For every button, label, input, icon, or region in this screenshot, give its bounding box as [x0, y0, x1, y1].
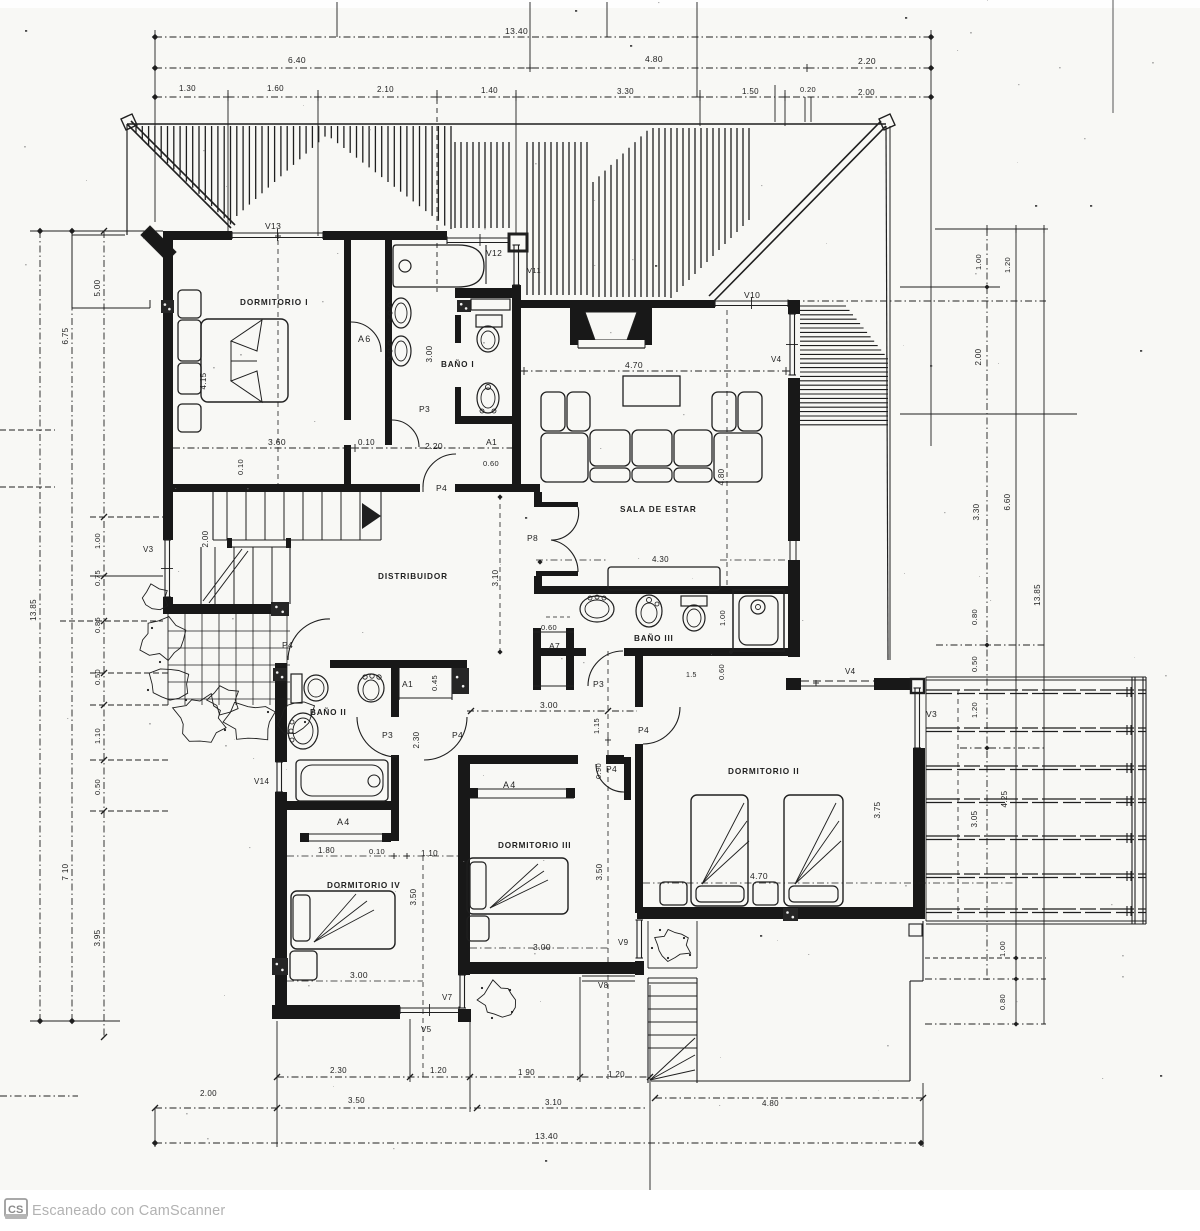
svg-text:3.50: 3.50: [595, 863, 604, 880]
svg-text:13.40: 13.40: [535, 1131, 558, 1141]
svg-text:P4: P4: [606, 764, 617, 774]
svg-text:V10: V10: [744, 290, 760, 300]
svg-text:0.45: 0.45: [430, 675, 439, 691]
svg-text:V14: V14: [254, 777, 269, 786]
svg-text:DORMITORIO III: DORMITORIO III: [498, 841, 571, 850]
svg-text:V12: V12: [486, 248, 502, 258]
svg-text:6.75: 6.75: [61, 327, 70, 344]
svg-text:3.50: 3.50: [409, 888, 418, 905]
svg-text:A4: A4: [503, 780, 516, 790]
svg-text:V7: V7: [442, 993, 453, 1002]
svg-text:2.20: 2.20: [425, 441, 443, 451]
svg-text:V4: V4: [845, 667, 856, 676]
svg-text:2.20: 2.20: [858, 56, 876, 66]
svg-text:3.10: 3.10: [491, 569, 500, 586]
svg-text:3.60: 3.60: [268, 437, 286, 447]
svg-text:P4: P4: [436, 483, 447, 493]
svg-text:2.30: 2.30: [412, 731, 421, 748]
svg-text:3.05: 3.05: [970, 810, 979, 827]
svg-text:P4: P4: [452, 730, 463, 740]
svg-text:1 90: 1 90: [518, 1068, 535, 1077]
svg-text:Escaneado con CamScanner: Escaneado con CamScanner: [32, 1203, 225, 1219]
svg-text:3.00: 3.00: [350, 970, 368, 980]
svg-text:13.40: 13.40: [505, 26, 528, 36]
svg-text:V8: V8: [598, 981, 609, 990]
svg-text:V4: V4: [771, 355, 782, 364]
svg-text:DORMITORIO II: DORMITORIO II: [728, 767, 800, 776]
svg-text:2.00: 2.00: [974, 348, 983, 365]
svg-text:P4: P4: [282, 640, 293, 650]
svg-text:1.15: 1.15: [592, 718, 601, 734]
svg-text:0.60: 0.60: [717, 664, 726, 680]
svg-text:0.75: 0.75: [93, 570, 102, 586]
svg-text:1.30: 1.30: [179, 84, 196, 93]
svg-text:3.95: 3.95: [93, 929, 102, 946]
svg-text:A6: A6: [358, 334, 371, 344]
svg-text:A7: A7: [549, 641, 560, 651]
svg-text:1.10: 1.10: [421, 849, 438, 858]
svg-text:4.80: 4.80: [762, 1099, 779, 1108]
svg-text:3.00: 3.00: [425, 345, 434, 362]
svg-text:2.00: 2.00: [200, 1089, 217, 1098]
svg-text:A4: A4: [337, 817, 350, 827]
svg-text:4.70: 4.70: [625, 360, 643, 370]
svg-text:A1: A1: [402, 679, 413, 689]
svg-text:V11: V11: [527, 266, 541, 275]
svg-text:0.80: 0.80: [998, 994, 1007, 1010]
svg-text:13.85: 13.85: [29, 599, 38, 621]
svg-text:0.10: 0.10: [369, 847, 385, 856]
svg-text:P3: P3: [419, 404, 430, 414]
svg-text:0.10: 0.10: [236, 459, 245, 475]
svg-text:4.15: 4.15: [199, 372, 208, 389]
svg-text:0.50: 0.50: [93, 779, 102, 795]
svg-text:0.20: 0.20: [800, 85, 816, 94]
svg-text:1 20: 1 20: [608, 1070, 625, 1079]
svg-text:1.40: 1.40: [481, 86, 498, 95]
svg-text:2.00: 2.00: [858, 88, 875, 97]
svg-text:1.00: 1.00: [718, 610, 727, 626]
svg-text:0.60: 0.60: [541, 623, 557, 632]
svg-text:3.30: 3.30: [617, 87, 634, 96]
svg-text:0.85: 0.85: [93, 617, 102, 633]
svg-text:V13: V13: [265, 221, 281, 231]
svg-text:V3: V3: [926, 709, 937, 719]
svg-text:1.60: 1.60: [267, 84, 284, 93]
svg-text:DISTRIBUIDOR: DISTRIBUIDOR: [378, 572, 448, 581]
svg-text:0.90: 0.90: [594, 763, 603, 779]
svg-text:P8: P8: [527, 533, 538, 543]
svg-text:13.85: 13.85: [1033, 584, 1042, 606]
svg-text:3.50: 3.50: [348, 1096, 365, 1105]
svg-text:V3: V3: [143, 545, 154, 554]
svg-text:P3: P3: [382, 730, 393, 740]
svg-text:0.50: 0.50: [93, 669, 102, 685]
svg-text:6.60: 6.60: [1003, 493, 1012, 510]
svg-text:4.80: 4.80: [717, 468, 726, 485]
svg-text:1.50: 1.50: [742, 87, 759, 96]
svg-text:DORMITORIO IV: DORMITORIO IV: [327, 881, 400, 890]
svg-text:4.30: 4.30: [652, 555, 669, 564]
svg-text:4.70: 4.70: [750, 871, 768, 881]
svg-text:6.40: 6.40: [288, 55, 306, 65]
svg-text:7 10: 7 10: [61, 863, 70, 880]
svg-text:1.00: 1.00: [974, 254, 983, 270]
svg-text:1.00: 1.00: [93, 533, 102, 549]
svg-text:2.00: 2.00: [201, 530, 210, 547]
svg-text:3.00: 3.00: [533, 942, 551, 952]
svg-text:4.80: 4.80: [645, 54, 663, 64]
svg-text:3.10: 3.10: [545, 1098, 562, 1107]
svg-text:1.10: 1.10: [93, 728, 102, 744]
svg-text:2.30: 2.30: [330, 1066, 347, 1075]
svg-text:V9: V9: [618, 938, 629, 947]
svg-text:0.60: 0.60: [483, 459, 499, 468]
svg-text:0.50: 0.50: [970, 656, 979, 672]
svg-text:5.00: 5.00: [93, 279, 102, 296]
svg-text:BAÑO I: BAÑO I: [441, 359, 474, 369]
svg-text:1.5: 1.5: [686, 672, 697, 679]
svg-text:1.20: 1.20: [970, 702, 979, 718]
svg-text:0.80: 0.80: [970, 609, 979, 625]
svg-text:3.30: 3.30: [972, 503, 981, 520]
svg-text:P3: P3: [593, 679, 604, 689]
svg-text:3.75: 3.75: [873, 801, 882, 818]
svg-text:V5: V5: [421, 1025, 432, 1034]
svg-text:2.10: 2.10: [377, 85, 394, 94]
svg-text:1.20: 1.20: [430, 1066, 447, 1075]
svg-text:1.20: 1.20: [1003, 257, 1012, 273]
svg-text:0.10: 0.10: [358, 438, 375, 447]
svg-text:A1: A1: [486, 437, 497, 447]
svg-text:DORMITORIO I: DORMITORIO I: [240, 298, 308, 307]
svg-text:1.80: 1.80: [318, 846, 335, 855]
svg-text:1.00: 1.00: [998, 941, 1007, 957]
svg-text:BAÑO II: BAÑO II: [310, 707, 347, 717]
svg-text:BAÑO III: BAÑO III: [634, 633, 674, 643]
svg-text:P4: P4: [638, 725, 649, 735]
svg-text:SALA DE ESTAR: SALA DE ESTAR: [620, 505, 697, 514]
svg-text:3.00: 3.00: [540, 700, 558, 710]
